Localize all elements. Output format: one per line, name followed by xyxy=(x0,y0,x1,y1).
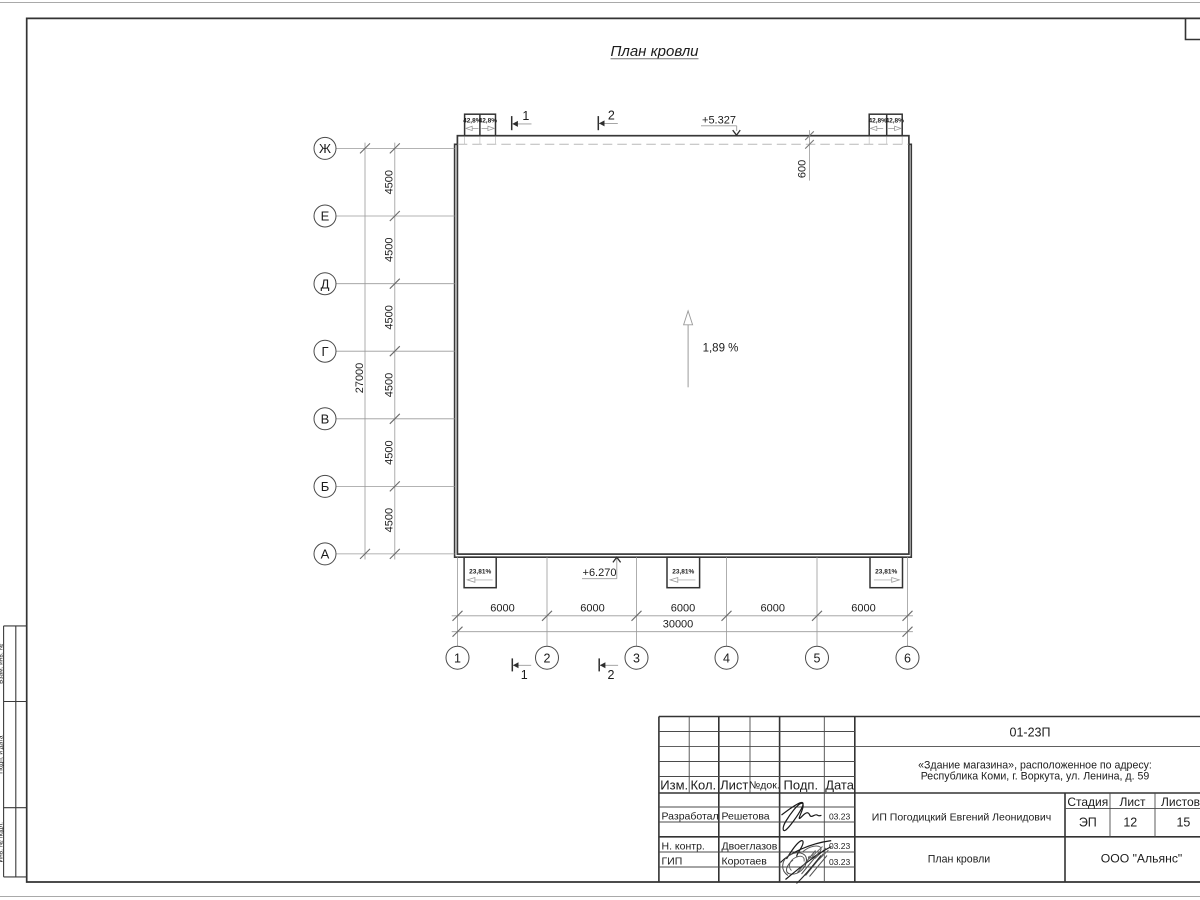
svg-text:Стадия: Стадия xyxy=(1067,795,1108,809)
svg-text:План кровли: План кровли xyxy=(611,43,700,60)
svg-text:Подп.: Подп. xyxy=(784,777,819,792)
svg-text:23,81%: 23,81% xyxy=(672,569,694,576)
svg-text:2: 2 xyxy=(544,651,551,665)
svg-text:ООО "Альянс": ООО "Альянс" xyxy=(1101,851,1183,865)
svg-text:2: 2 xyxy=(608,668,615,682)
svg-text:03.23: 03.23 xyxy=(829,812,851,822)
svg-text:Кол.: Кол. xyxy=(690,777,716,792)
svg-text:6000: 6000 xyxy=(490,602,514,614)
svg-text:4500: 4500 xyxy=(384,305,396,329)
svg-text:ГИП: ГИП xyxy=(662,856,683,868)
svg-text:1: 1 xyxy=(521,668,528,682)
svg-text:30000: 30000 xyxy=(663,619,694,631)
svg-text:5: 5 xyxy=(814,651,821,665)
svg-text:03.23: 03.23 xyxy=(829,841,851,851)
svg-text:Листов: Листов xyxy=(1161,795,1200,809)
svg-text:В: В xyxy=(321,411,330,426)
svg-text:6000: 6000 xyxy=(671,602,695,614)
svg-text:03.23: 03.23 xyxy=(829,857,851,867)
svg-text:Инв. № подл.: Инв. № подл. xyxy=(0,822,5,863)
svg-text:Б: Б xyxy=(321,479,330,494)
svg-text:А: А xyxy=(321,547,330,562)
svg-text:Двоеглазов: Двоеглазов xyxy=(722,840,778,852)
svg-text:6: 6 xyxy=(904,651,911,665)
svg-text:Подп. и дата: Подп. и дата xyxy=(0,735,5,774)
svg-text:4500: 4500 xyxy=(384,440,396,464)
svg-text:6000: 6000 xyxy=(761,602,785,614)
svg-text:42,8%: 42,8% xyxy=(868,118,887,125)
svg-text:6000: 6000 xyxy=(851,602,875,614)
svg-text:Лист: Лист xyxy=(1119,795,1146,809)
svg-text:600: 600 xyxy=(796,160,808,178)
svg-text:Разработал: Разработал xyxy=(662,811,719,823)
svg-text:Коротаев: Коротаев xyxy=(722,856,768,868)
svg-text:6000: 6000 xyxy=(580,602,604,614)
svg-text:Н. контр.: Н. контр. xyxy=(662,840,705,852)
svg-text:42,8%: 42,8% xyxy=(885,118,904,125)
svg-text:1: 1 xyxy=(522,109,529,123)
svg-text:№док.: №док. xyxy=(749,780,780,792)
svg-text:4500: 4500 xyxy=(384,238,396,262)
svg-text:01-23П: 01-23П xyxy=(1010,725,1051,739)
svg-text:2: 2 xyxy=(608,108,615,122)
svg-text:4: 4 xyxy=(723,651,730,665)
svg-text:23,81%: 23,81% xyxy=(469,569,491,576)
svg-text:27000: 27000 xyxy=(354,363,366,394)
svg-text:План кровли: План кровли xyxy=(928,853,990,865)
svg-text:4500: 4500 xyxy=(384,508,396,532)
svg-text:+6.270: +6.270 xyxy=(583,567,617,579)
svg-text:Решетова: Решетова xyxy=(722,811,770,823)
svg-text:Дата: Дата xyxy=(825,777,855,792)
svg-text:1,89 %: 1,89 % xyxy=(703,342,739,354)
svg-text:4500: 4500 xyxy=(384,373,396,397)
svg-text:42,8%: 42,8% xyxy=(479,118,498,125)
svg-text:+5.327: +5.327 xyxy=(702,115,736,127)
svg-text:Изм.: Изм. xyxy=(660,777,688,792)
svg-text:Е: Е xyxy=(321,209,330,224)
svg-text:1: 1 xyxy=(454,651,461,665)
svg-text:15: 15 xyxy=(1176,816,1190,830)
svg-text:Взам. инв. №: Взам. инв. № xyxy=(0,644,5,684)
svg-text:Республика Коми, г. Воркута, у: Республика Коми, г. Воркута, ул. Ленина,… xyxy=(921,770,1150,782)
svg-text:Г: Г xyxy=(321,344,328,359)
svg-text:3: 3 xyxy=(633,651,640,665)
svg-text:4500: 4500 xyxy=(384,170,396,194)
svg-text:Ж: Ж xyxy=(319,141,331,156)
svg-text:ИП Погодицкий Евгений Леонидов: ИП Погодицкий Евгений Леонидович xyxy=(872,811,1051,823)
svg-text:12: 12 xyxy=(1123,816,1137,830)
svg-text:ЭП: ЭП xyxy=(1079,815,1097,829)
svg-text:23,81%: 23,81% xyxy=(875,569,897,576)
svg-text:Д: Д xyxy=(321,276,330,291)
svg-text:Лист: Лист xyxy=(720,777,748,792)
